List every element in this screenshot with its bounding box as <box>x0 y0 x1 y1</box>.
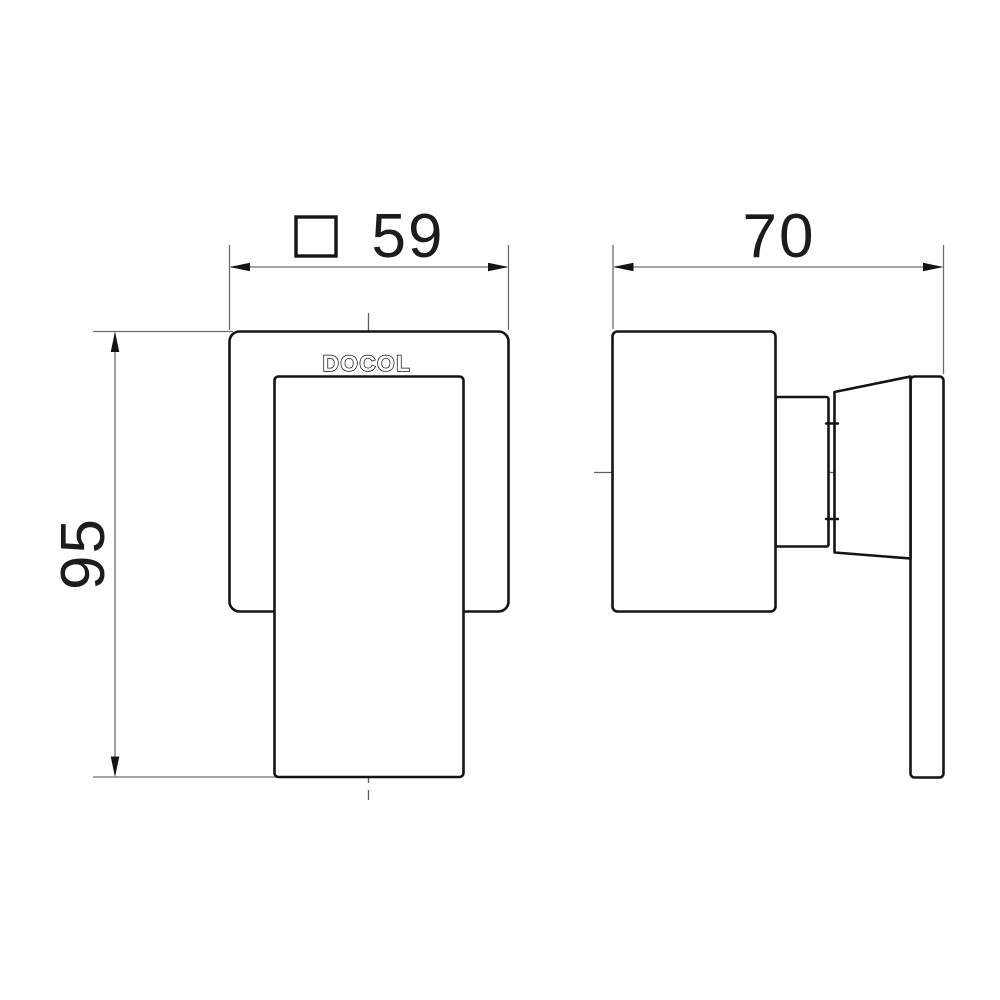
side-wall-plate <box>911 377 944 778</box>
front-handle-lever <box>275 377 464 778</box>
technical-drawing-canvas: 59 70 95 DOCOL <box>0 0 1000 1000</box>
arrowhead-right-icon <box>923 263 944 272</box>
side-view <box>613 332 944 778</box>
arrowhead-top-icon <box>111 332 120 353</box>
dim-front-width-value: 59 <box>372 202 445 271</box>
valve-trim-dimension-drawing: 59 70 95 DOCOL <box>0 0 1000 1000</box>
side-escutcheon-cone <box>835 377 911 559</box>
side-handle-neck <box>776 397 829 547</box>
front-view: DOCOL <box>230 332 509 778</box>
side-handle-body <box>613 332 776 612</box>
arrowhead-right-icon <box>488 263 509 272</box>
arrowhead-left-icon <box>230 263 251 272</box>
brand-logo: DOCOL <box>323 351 412 376</box>
dim-side-depth-value: 70 <box>743 202 816 271</box>
arrowhead-left-icon <box>613 263 634 272</box>
arrowhead-bottom-icon <box>111 757 120 778</box>
dim-front-width-group: 59 <box>230 202 509 330</box>
dim-front-height-value: 95 <box>49 517 118 590</box>
square-section-symbol <box>296 217 336 256</box>
